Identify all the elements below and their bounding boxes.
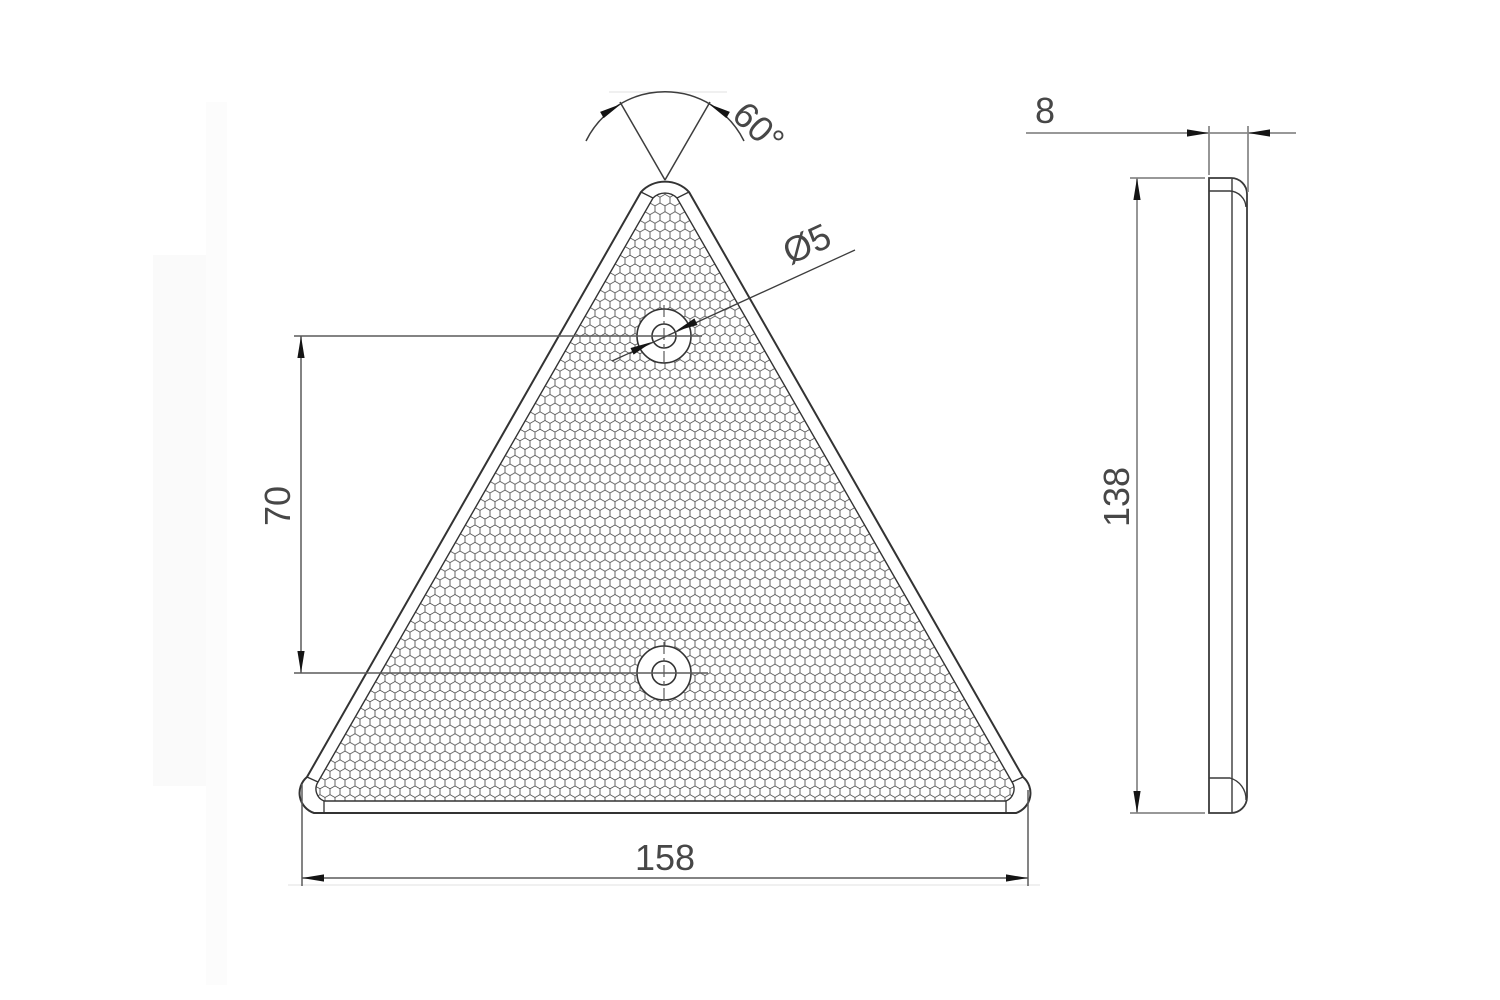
side-height-label: 138 [1096,467,1137,527]
dimension-arrowhead [297,651,304,673]
dimension-arrowhead [1248,129,1270,136]
dimension-arrowhead [600,104,621,118]
apex-angle-label: 60° [725,93,793,160]
side-profile-outline [1209,178,1247,813]
dim-side-height: 138 [1096,178,1205,813]
drawing-canvas: 60° Ø5 70 158 138 8 [0,0,1500,1000]
dim-apex-angle: 60° [586,92,793,180]
thickness-label: 8 [1035,90,1055,131]
watermark-band [153,255,206,786]
dimension-arrowhead [302,874,324,881]
base-width-label: 158 [635,837,695,878]
watermark-band [206,102,227,985]
angle-side-line [620,102,665,180]
technical-drawing: 60° Ø5 70 158 138 8 [0,0,1500,1000]
angle-arc [586,92,744,141]
dimension-arrowhead [709,104,730,118]
side-view [1209,178,1247,813]
dimension-arrowhead [1187,129,1209,136]
dim-thickness: 8 [1026,90,1296,192]
angle-side-line [665,102,710,180]
hole-spacing-label: 70 [257,486,298,526]
reflector-honeycomb-area [316,193,1014,801]
dimension-arrowhead [1133,791,1140,813]
hole-diameter-label: Ø5 [776,215,837,272]
dimension-arrowhead [297,336,304,358]
front-view [300,182,1031,814]
dimension-arrowhead [1133,178,1140,200]
dimension-arrowhead [1006,874,1028,881]
